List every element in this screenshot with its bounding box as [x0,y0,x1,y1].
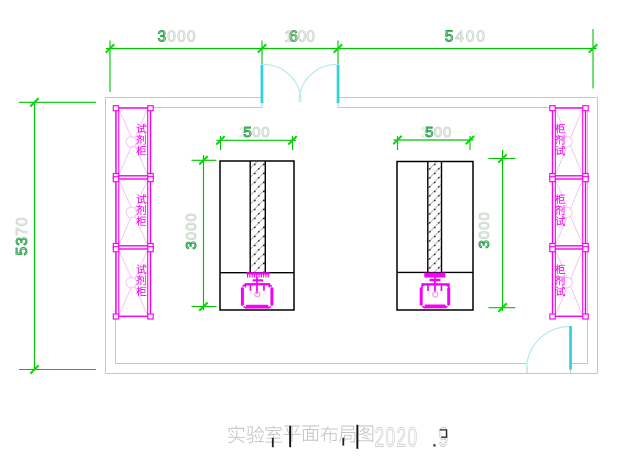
svg-text:5: 5 [445,28,454,45]
svg-text:0: 0 [476,212,493,220]
svg-text:0: 0 [187,28,196,45]
svg-text:0: 0 [306,28,315,45]
svg-text:0: 0 [183,213,200,221]
svg-text:0: 0 [434,124,442,141]
svg-text:2020: 2020 [375,421,419,452]
svg-text:0: 0 [466,28,475,45]
svg-text:7: 7 [14,227,31,236]
svg-text:3: 3 [183,241,200,249]
svg-text:0: 0 [261,124,269,141]
svg-text:6: 6 [289,28,298,45]
svg-text:3: 3 [158,28,167,45]
svg-text:5: 5 [425,124,433,141]
svg-text:0: 0 [252,124,260,141]
svg-text:0: 0 [177,28,186,45]
svg-text:0: 0 [476,231,493,239]
svg-text:0: 0 [476,28,485,45]
svg-text:5: 5 [243,124,251,141]
svg-text:0: 0 [183,232,200,240]
svg-text:0: 0 [167,28,176,45]
svg-text:3: 3 [476,240,493,248]
svg-text:4: 4 [455,28,464,45]
svg-text:0: 0 [298,28,307,45]
svg-text:3: 3 [14,237,31,246]
svg-text:0: 0 [14,217,31,226]
svg-text:0: 0 [183,223,200,231]
svg-text:0: 0 [476,222,493,230]
svg-text:0: 0 [443,124,451,141]
svg-text:5: 5 [14,247,31,256]
